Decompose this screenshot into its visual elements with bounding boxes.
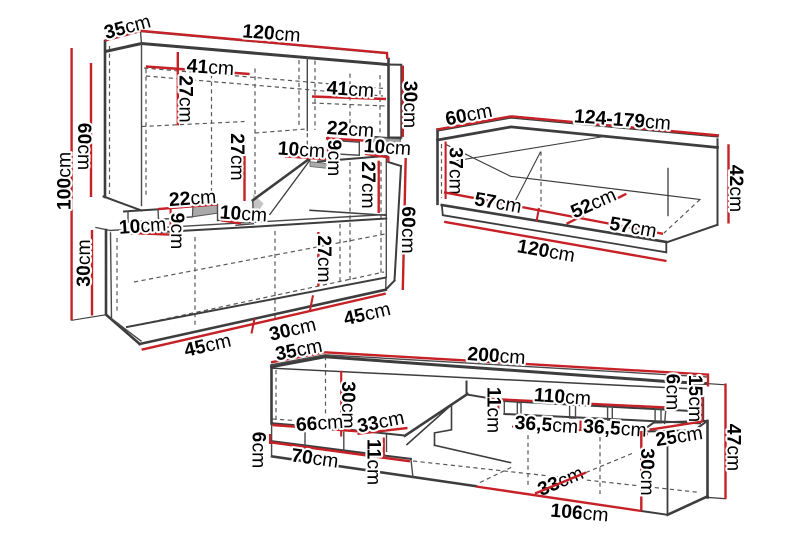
svg-text:15cm: 15cm bbox=[684, 375, 706, 422]
svg-text:66cm: 66cm bbox=[295, 411, 344, 436]
svg-text:30cm: 30cm bbox=[399, 81, 421, 128]
svg-text:27cm: 27cm bbox=[226, 133, 248, 180]
svg-text:36,5cm: 36,5cm bbox=[514, 412, 579, 438]
svg-text:200cm: 200cm bbox=[467, 343, 527, 369]
svg-text:30cm: 30cm bbox=[636, 448, 658, 495]
svg-text:100cm: 100cm bbox=[54, 152, 76, 210]
svg-text:22cm: 22cm bbox=[168, 186, 217, 211]
svg-text:120cm: 120cm bbox=[242, 20, 302, 46]
svg-text:11cm: 11cm bbox=[483, 387, 505, 433]
svg-text:37cm: 37cm bbox=[445, 147, 467, 194]
svg-text:27cm: 27cm bbox=[357, 161, 379, 208]
svg-text:27cm: 27cm bbox=[313, 235, 335, 282]
svg-text:27cm: 27cm bbox=[175, 75, 197, 122]
svg-text:110cm: 110cm bbox=[533, 384, 592, 410]
svg-text:10cm: 10cm bbox=[118, 214, 167, 239]
svg-text:6cm: 6cm bbox=[662, 374, 684, 411]
svg-text:9cm: 9cm bbox=[166, 213, 188, 250]
svg-text:60cm: 60cm bbox=[73, 123, 95, 170]
svg-text:30cm: 30cm bbox=[73, 239, 95, 286]
svg-text:11cm: 11cm bbox=[363, 439, 385, 485]
svg-text:60cm: 60cm bbox=[397, 206, 419, 253]
svg-text:10cm: 10cm bbox=[363, 135, 412, 160]
svg-text:42cm: 42cm bbox=[725, 165, 747, 212]
svg-text:10cm: 10cm bbox=[219, 201, 268, 226]
svg-text:10cm: 10cm bbox=[277, 137, 326, 162]
svg-text:36,5cm: 36,5cm bbox=[582, 415, 647, 441]
svg-text:9cm: 9cm bbox=[323, 140, 345, 177]
svg-text:6cm: 6cm bbox=[248, 432, 270, 469]
svg-text:41cm: 41cm bbox=[326, 77, 375, 102]
svg-text:47cm: 47cm bbox=[723, 424, 745, 471]
